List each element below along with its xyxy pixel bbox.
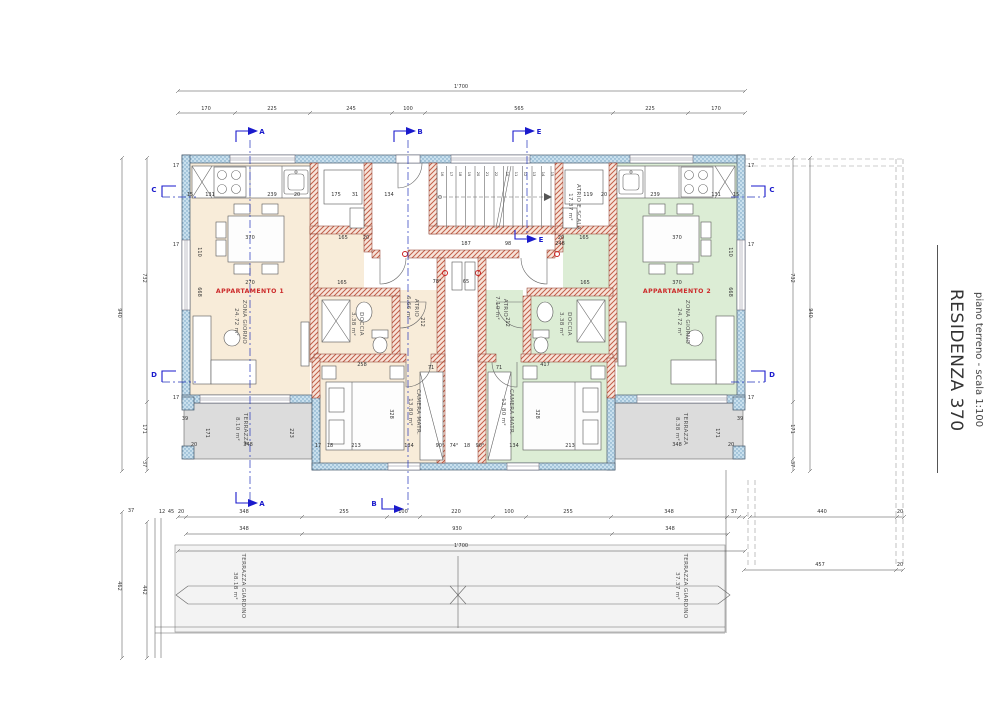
dimension-label: 110 (196, 247, 202, 257)
dimension-label: 171 (714, 428, 720, 438)
dimension-label: 131 (711, 192, 721, 198)
dimension-label: 20 (897, 562, 903, 568)
dimension-label: 668 (727, 287, 733, 297)
window-bedroom-apt2 (507, 463, 539, 470)
terrace-door-apt2 (637, 395, 727, 403)
dimension-label: 100 (504, 509, 514, 515)
section-letter-a: A (259, 500, 265, 508)
dimension-label: 370 (672, 235, 682, 241)
dimension-label: 39 (182, 416, 188, 422)
dimension-label: 15 (733, 192, 739, 198)
garden-terrace (175, 545, 725, 632)
apt2-terrace-label: TERRAZZA (682, 412, 688, 445)
dimension-label: 348 (239, 509, 249, 515)
dimension-label: 440 (817, 509, 827, 515)
window-bedroom-apt1 (388, 463, 420, 470)
apt2-garden-area: 37.37 m² (674, 572, 681, 600)
dimension-label: 134 (509, 443, 519, 449)
dimension-label: 71 (496, 365, 502, 371)
washbasin-icon (537, 302, 553, 322)
core-label: ATRIO E SCALA (575, 184, 581, 230)
section-letter-c: C (151, 186, 156, 194)
apt2-bath-area: 3.38 m² (558, 312, 565, 336)
dimension-label: 1'700 (454, 543, 468, 549)
dimension-label: 732 (141, 273, 147, 283)
apt2-bedroom-area: 13.80 m² (500, 398, 507, 426)
dimension-label: 171 (204, 428, 210, 438)
stair-tread-number: 12 (523, 172, 527, 177)
dimension-label: 225 (645, 106, 655, 112)
dimension-label: 370 (672, 280, 682, 286)
toilet-icon (372, 330, 388, 353)
apt2-name: APPARTAMENTO 2 (643, 288, 711, 295)
dimension-label: 165 (580, 280, 590, 286)
apt1-garden-label: TERRAZZA GIARDINO (240, 553, 246, 619)
sheet-title: piano terreno - scala 1:100 (968, 246, 984, 474)
dimension-label: 18 (327, 443, 333, 449)
apt2-living-area: 24.72 m² (676, 308, 683, 336)
stair-tread-number: 13 (532, 172, 536, 177)
dimension-label: 17 (748, 242, 754, 248)
dimension-label: 15 (187, 192, 193, 198)
dimension-label: 239 (650, 192, 660, 198)
stair-tread-number: 10 (505, 172, 509, 177)
dimension-label: 255 (563, 509, 573, 515)
dimension-label: 732 (789, 273, 795, 283)
apt1-terrace-label: TERRAZZA (242, 412, 248, 445)
apt2-atrio-label: ATRIO (502, 299, 508, 318)
dimension-label: 20 (294, 192, 300, 198)
dimension-label: 165 (579, 235, 589, 241)
apt1-bath-label: DOCCIA (358, 312, 364, 336)
dimension-label: 20 (897, 509, 903, 515)
stair-tread-number: 22 (494, 172, 498, 177)
section-letter-b: B (417, 128, 422, 136)
dimension-label: 20 (178, 509, 184, 515)
dimension-label: 220 (451, 509, 461, 515)
drawing-sheet: A B E A B E C C D D APPARTAMENTO 1 APPAR… (0, 0, 1000, 707)
apt2-terrace-area: 8.38 m² (674, 417, 681, 441)
dimension-label: 565 (514, 106, 524, 112)
titleblock-divider (937, 245, 938, 473)
dimension-label: 20 (191, 442, 197, 448)
dimension-label: 225 (267, 106, 277, 112)
apt2-atrio-area: 7.10 m² (494, 296, 501, 320)
dimension-label: 171 (141, 424, 147, 434)
stair-tread-number: 15 (550, 172, 554, 177)
dimension-label: 212 (504, 317, 510, 327)
dimension-label: 110 (727, 247, 733, 257)
dimension-label: 370 (245, 235, 255, 241)
section-letter-c: C (769, 186, 774, 194)
section-letter-d: D (151, 371, 157, 379)
dimension-label: 175 (331, 192, 341, 198)
core-area: 17.37 m² (567, 193, 574, 221)
property-lines (745, 159, 903, 565)
apt2-bath-label: DOCCIA (566, 312, 572, 336)
dimension-label: 668 (196, 287, 202, 297)
window-kitchen-apt2 (630, 155, 693, 163)
dimension-label: 100 (398, 509, 408, 515)
dimension-label: 18 (464, 443, 470, 449)
dimension-label: 212 (419, 317, 425, 327)
dimension-label: 17 (748, 395, 754, 401)
dimension-label: 17 (748, 163, 754, 169)
dimension-label: 442 (141, 585, 147, 595)
dimension-label: 17 (173, 395, 179, 401)
dimension-label: 348 (239, 526, 249, 532)
dimension-label: 239 (267, 192, 277, 198)
dimension-label: 171 (789, 424, 795, 434)
floor-plan: A B E A B E C C D D APPARTAMENTO 1 APPAR… (0, 0, 1000, 707)
dimension-label: 248 (555, 241, 565, 247)
apt1-living-label: ZONA GIORNO (241, 300, 247, 344)
dimension-label: 348 (672, 442, 682, 448)
dimension-label: 71 (428, 365, 434, 371)
dimension-label: 170 (711, 106, 721, 112)
dimension-label: 258 (357, 362, 367, 368)
dimension-label: 37 (789, 461, 795, 467)
apt1-garden-area: 38.18 m² (232, 572, 239, 600)
dimension-label: 65 (463, 279, 469, 285)
apt1-name: APPARTAMENTO 1 (216, 288, 284, 295)
apt2-garden-label: TERRAZZA GIARDINO (682, 553, 688, 619)
apt1-atrio-label: ATRIO (413, 299, 419, 318)
window-living-apt2 (737, 240, 745, 310)
shower-icon (577, 300, 605, 342)
stair-tread-number: 18 (458, 172, 462, 177)
shower-icon (322, 300, 350, 342)
stair-tread-number: 11 (514, 172, 518, 177)
dimension-label: 187 (461, 241, 471, 247)
cooktop-icon (681, 167, 713, 197)
section-letter-d: D (769, 371, 775, 379)
dimension-label: 37 (731, 509, 737, 515)
dimension-label: 12 (159, 509, 165, 515)
dimension-label: 90° (476, 443, 485, 449)
dimension-label: 213 (351, 443, 361, 449)
dimension-label: 20 (363, 235, 369, 241)
dimension-label: 165 (338, 235, 348, 241)
dimension-label: 20 (728, 442, 734, 448)
tv-cabinet (301, 322, 309, 366)
tv-cabinet (618, 322, 626, 366)
sink-icon (619, 170, 643, 194)
stair-tread-number: 21 (485, 172, 489, 177)
dimension-label: 348 (665, 526, 675, 532)
dimension-label: 17 (173, 163, 179, 169)
dimension-label: 131 (205, 192, 215, 198)
dimension-label: 119 (583, 192, 593, 198)
stair-tread-number: 19 (467, 172, 471, 177)
dimension-label: 348 (664, 509, 674, 515)
cooktop-icon (214, 167, 246, 197)
stair-tread-number: 17 (449, 172, 453, 177)
dimension-label: 17 (315, 443, 321, 449)
dimension-label: 940 (807, 308, 813, 318)
dimension-label: 328 (534, 409, 540, 419)
apt2-bedroom-label: CAMERA MATR. (508, 389, 514, 435)
dimension-label: 165 (337, 280, 347, 286)
section-letter-e: E (537, 128, 542, 136)
dimension-label: 1'700 (454, 84, 468, 90)
dimension-label: 78° (433, 279, 442, 285)
dimension-label: 90° (436, 443, 445, 449)
dimension-label: 417 (540, 362, 550, 368)
dimension-label: 20 (601, 192, 607, 198)
apt2-living-label: ZONA GIORNO (684, 300, 690, 344)
dimension-label: 462 (116, 581, 122, 591)
dimension-label: 245 (346, 106, 356, 112)
dimension-label: 17 (173, 242, 179, 248)
apt1-terrace-area: 8.10 m² (234, 417, 241, 441)
dimension-label: 940 (116, 308, 122, 318)
dimension-label: 37 (128, 508, 134, 514)
section-letter-e: E (539, 236, 544, 244)
dimension-label: 255 (339, 509, 349, 515)
apt1-atrio-area: 6.66 m² (405, 296, 412, 320)
dimension-label: 134 (404, 443, 414, 449)
dimension-label: 223 (288, 428, 294, 438)
dimension-label: 170 (201, 106, 211, 112)
dimension-label: 98 (505, 241, 511, 247)
stair-tread-number: 16 (440, 172, 444, 177)
toilet-icon (533, 330, 549, 353)
stair-tread-number: 20 (476, 172, 480, 177)
dimension-label: 348 (243, 442, 253, 448)
dimension-label: 930 (452, 526, 462, 532)
dimension-label: 100 (403, 106, 413, 112)
dimension-label: 31 (352, 192, 358, 198)
project-title: RESIDENZA 370 (942, 246, 966, 474)
dimension-label: 270 (245, 280, 255, 286)
apt1-bedroom-area: 13.80 m² (407, 398, 414, 426)
dimension-label: 39 (737, 416, 743, 422)
section-letter-a: A (259, 128, 265, 136)
dimension-label: 213 (565, 443, 575, 449)
window-living-apt1 (182, 240, 190, 310)
dimension-label: 45 (168, 509, 174, 515)
window-stairs (451, 155, 530, 163)
dimension-label: 457 (815, 562, 825, 568)
dimension-label: 74° (450, 443, 459, 449)
terrace-door-apt1 (200, 395, 290, 403)
dimension-label: 37 (141, 461, 147, 467)
sink-icon (284, 170, 308, 194)
stair-tread-number: 14 (541, 172, 545, 177)
dimension-label: 328 (388, 409, 394, 419)
apt1-living-area: 24.72 m² (233, 308, 240, 336)
apt1-bath-area: 3.38 m² (350, 312, 357, 336)
section-letter-b: B (371, 500, 376, 508)
dimension-label: 134 (384, 192, 394, 198)
apt1-bedroom-label: CAMERA MATR. (415, 389, 421, 435)
window-kitchen-apt1 (230, 155, 295, 163)
